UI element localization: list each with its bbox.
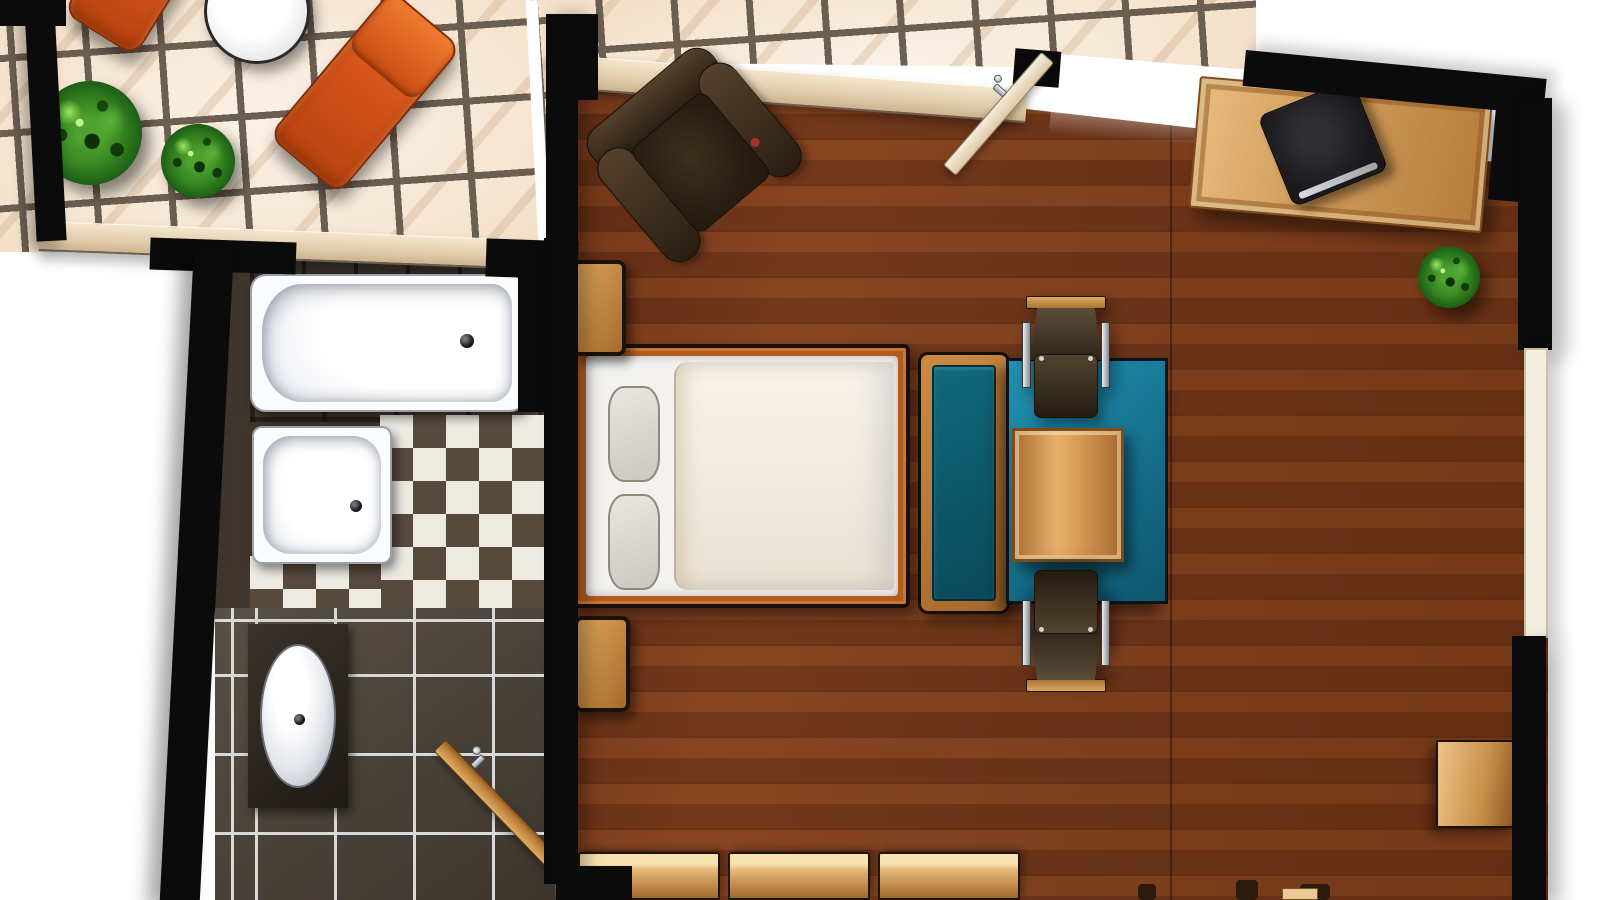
main-room-wall-left-top [546, 14, 598, 100]
pillow-right [608, 494, 660, 590]
furniture-edge-bottom [1282, 888, 1318, 900]
teal-bench [918, 352, 1010, 614]
shower-drain [350, 500, 362, 512]
potted-plant-right [1418, 246, 1480, 308]
chair-backrest [1030, 628, 1102, 680]
dining-table [1012, 428, 1124, 562]
main-room-wall-bottom-left [556, 866, 632, 900]
floor-plan [0, 0, 1600, 900]
chair-backrest [1030, 308, 1102, 360]
bed-duvet [674, 362, 894, 590]
wardrobe-unit-3 [878, 852, 1020, 900]
wall-shelf [1436, 740, 1514, 828]
main-room-wall-left [546, 14, 578, 880]
chair-seat [1034, 570, 1098, 634]
bathtub [250, 274, 526, 412]
entry-door-knob [992, 73, 1003, 84]
dining-chair-north [1022, 296, 1110, 422]
wardrobe-unit-2 [728, 852, 870, 900]
chair-bolt [1039, 356, 1044, 361]
bathtub-side-wall [518, 260, 546, 412]
chair-leg-left [1022, 322, 1031, 388]
shower-basin [263, 436, 381, 554]
chair-seat [1034, 354, 1098, 418]
terrace-wall-corner [0, 0, 66, 26]
chair-bolt [1088, 627, 1093, 632]
chair-leg-left [1022, 600, 1031, 666]
chair-top-rail [1026, 679, 1106, 692]
main-room-wall-right-upper [1518, 98, 1552, 350]
washbasin-drain [294, 714, 305, 725]
chair-top-rail [1026, 296, 1106, 309]
chair-bolt [1039, 627, 1044, 632]
right-window [1524, 348, 1548, 638]
furniture-leg-mark [1138, 884, 1156, 900]
bathroom-checkerboard-tiles [380, 415, 544, 618]
main-room-wall-right-lower [1512, 636, 1546, 900]
double-bed [570, 344, 910, 608]
shower-tray [252, 426, 392, 564]
bench-cushion [932, 365, 996, 601]
chair-bolt [1088, 356, 1093, 361]
washbasin [260, 644, 336, 788]
chair-leg-right [1101, 322, 1110, 388]
dining-chair-south [1022, 566, 1110, 692]
pillow-left [608, 386, 660, 482]
furniture-leg-mark [1236, 880, 1258, 900]
bathtub-basin [262, 284, 512, 402]
nightstand-foot [574, 616, 630, 712]
nightstand-head [572, 260, 626, 356]
bathtub-drain [460, 334, 474, 348]
washbasin-counter [248, 624, 348, 808]
potted-plant-small [161, 124, 235, 198]
chair-leg-right [1101, 600, 1110, 666]
